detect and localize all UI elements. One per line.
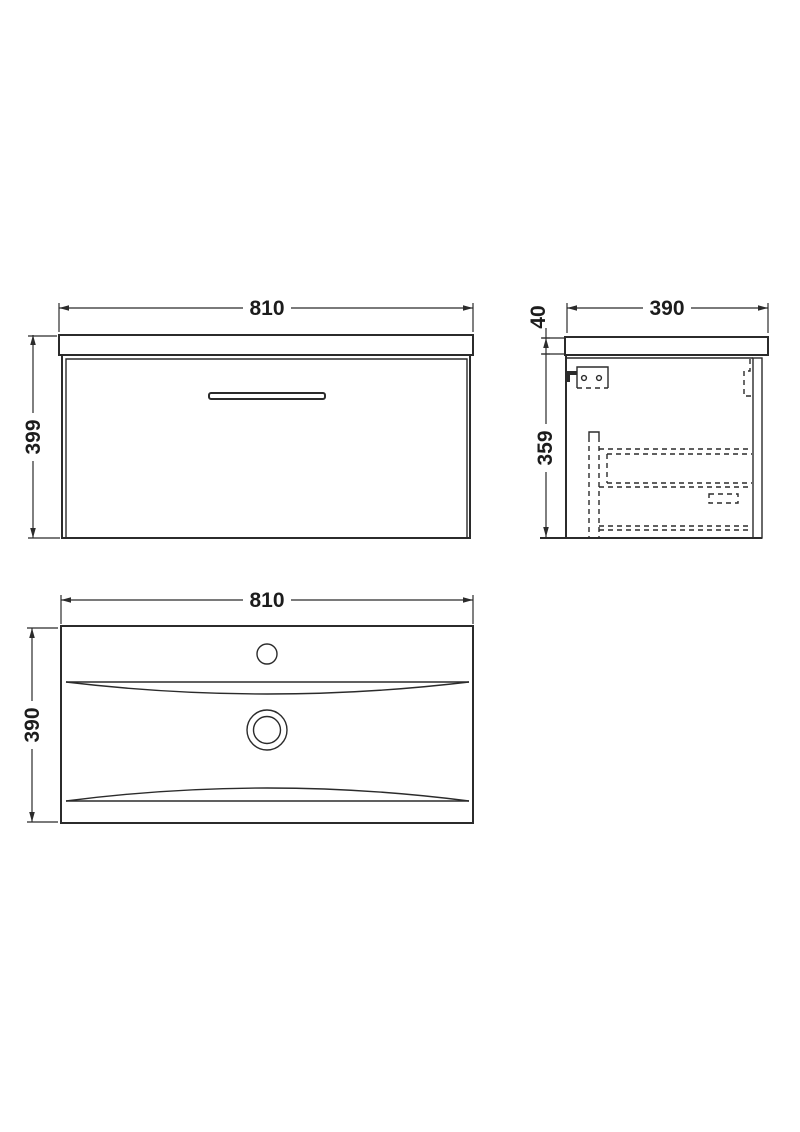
bracket-hook-tab xyxy=(566,375,570,382)
rotated-label-group: 359 xyxy=(534,424,557,472)
plan-depth-label: 390 xyxy=(21,707,44,742)
rotated-label-group: 399 xyxy=(22,413,45,461)
side-worktop xyxy=(565,337,768,355)
front-height-label: 399 xyxy=(22,419,45,454)
arrowhead-bottom xyxy=(543,527,549,537)
arrowhead-right xyxy=(758,305,768,311)
front-drawer-front-panel xyxy=(66,359,467,538)
side-height-dimensions: 40 359 xyxy=(527,305,565,537)
front-cabinet-outline xyxy=(62,355,470,538)
arrowhead-top xyxy=(29,628,35,638)
arrowhead-left xyxy=(61,597,71,603)
side-worktop-thickness-label: 40 xyxy=(527,305,550,328)
rotated-label-group: 40 xyxy=(527,305,550,328)
wall-bracket xyxy=(566,367,608,388)
plan-depth-dimension: 390 xyxy=(21,628,58,822)
side-depth-dimension: 390 xyxy=(567,297,768,333)
arrowhead-bottom xyxy=(29,812,35,822)
arrowhead-left xyxy=(59,305,69,311)
basin-back-inner-curve xyxy=(66,682,469,694)
bracket-hook xyxy=(566,371,577,375)
arrowhead-top xyxy=(543,338,549,348)
drain-inner-ring xyxy=(254,717,281,744)
arrowhead-left xyxy=(567,305,577,311)
front-width-label: 810 xyxy=(249,297,284,320)
tap-hole xyxy=(257,644,277,664)
hidden-drawer-parts xyxy=(589,359,752,537)
basin-front-inner-curve xyxy=(66,788,469,801)
front-view: 810 399 xyxy=(22,296,473,538)
bracket-screw-hole xyxy=(582,376,587,381)
front-width-dimension: 810 xyxy=(59,296,473,332)
bracket-screw-hole xyxy=(597,376,602,381)
side-drawer-front-panel xyxy=(753,358,762,538)
vanity-technical-drawing: 810 399 xyxy=(0,0,800,1132)
front-worktop xyxy=(59,335,473,355)
side-depth-label: 390 xyxy=(649,297,684,320)
arrowhead-bottom xyxy=(30,528,36,538)
arrowhead-right xyxy=(463,597,473,603)
front-fixing-bracket-hidden xyxy=(744,359,752,396)
front-drawer-handle xyxy=(209,393,325,399)
drawer-back-panel-top xyxy=(589,432,599,437)
arrowhead-right xyxy=(463,305,473,311)
basin-plan-view: 810 390 xyxy=(21,589,473,823)
side-view: 390 40 359 xyxy=(527,297,768,538)
side-cabinet-height-label: 359 xyxy=(534,430,557,465)
rotated-label-group: 390 xyxy=(21,701,44,749)
front-height-dimension: 399 xyxy=(22,335,60,538)
plan-width-label: 810 xyxy=(249,589,284,612)
drawer-handle-hidden xyxy=(709,494,738,503)
plan-width-dimension: 810 xyxy=(61,589,473,624)
basin-outline xyxy=(61,626,473,823)
technical-drawing-page: 810 399 xyxy=(0,0,800,1132)
